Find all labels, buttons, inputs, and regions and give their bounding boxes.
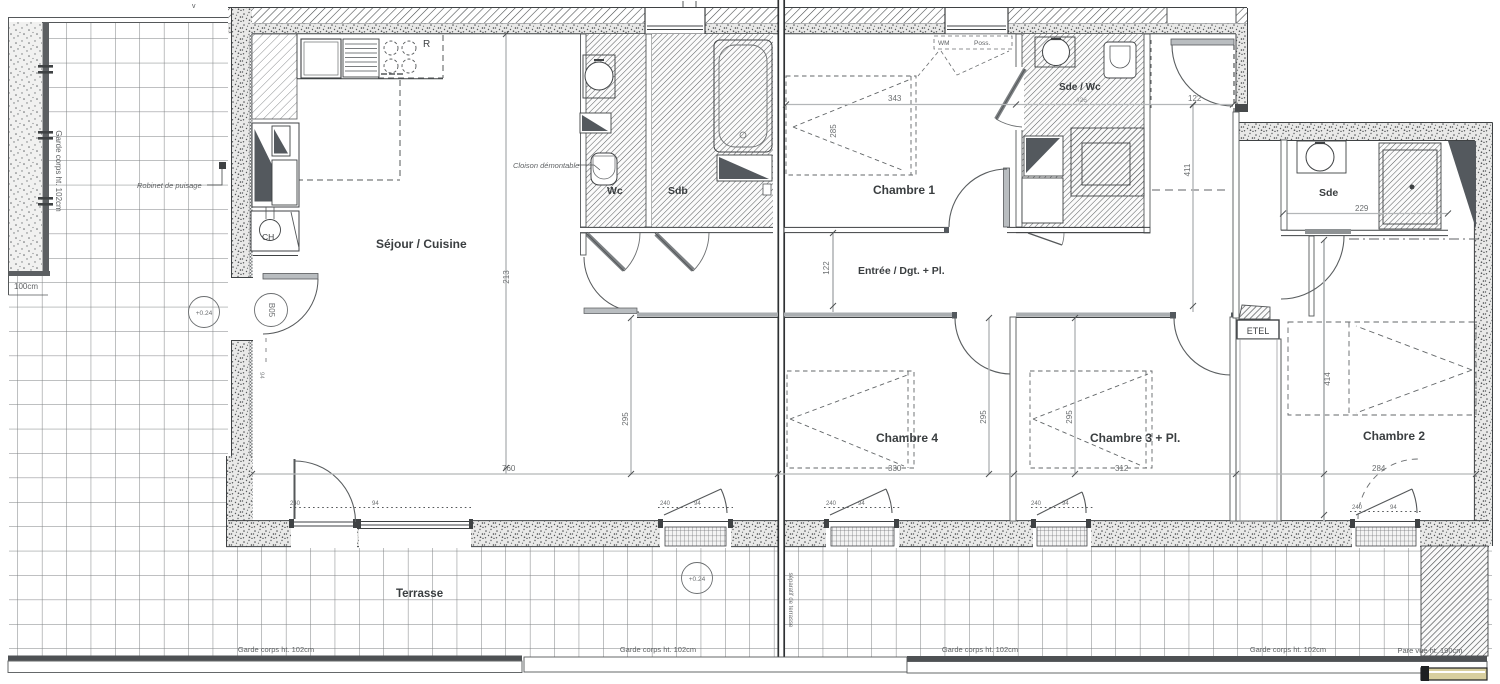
- svg-text:Chambre 2: Chambre 2: [1363, 429, 1425, 443]
- svg-text:B05: B05: [267, 303, 276, 318]
- svg-text:Garde corps ht. 102cm: Garde corps ht. 102cm: [942, 645, 1018, 654]
- svg-text:Robinet de puisage: Robinet de puisage: [137, 181, 202, 190]
- svg-text:240: 240: [826, 501, 837, 507]
- svg-text:295: 295: [979, 410, 988, 424]
- svg-text:CH: CH: [262, 232, 274, 242]
- svg-text:240: 240: [1031, 501, 1042, 507]
- svg-text:94: 94: [858, 501, 865, 507]
- svg-text:WM: WM: [938, 40, 950, 47]
- svg-text:Chambre 3 + Pl.: Chambre 3 + Pl.: [1090, 431, 1180, 445]
- svg-text:285: 285: [829, 124, 838, 138]
- svg-text:Wc: Wc: [607, 185, 623, 197]
- svg-text:229: 229: [1355, 204, 1369, 213]
- svg-text:240: 240: [1352, 505, 1363, 511]
- svg-text:Garde corps ht. 102cm: Garde corps ht. 102cm: [620, 645, 696, 654]
- svg-text:Garde corps ht. 102cm: Garde corps ht. 102cm: [238, 645, 314, 654]
- svg-text:+0.24: +0.24: [689, 576, 706, 583]
- svg-text:122: 122: [822, 261, 831, 275]
- svg-text:Séjour / Cuisine: Séjour / Cuisine: [376, 237, 467, 251]
- svg-text:240: 240: [660, 501, 671, 507]
- svg-text:94: 94: [1390, 505, 1397, 511]
- svg-text:#26: #26: [1076, 97, 1087, 104]
- svg-text:240: 240: [290, 501, 301, 507]
- svg-text:Cloison démontable: Cloison démontable: [513, 161, 579, 170]
- svg-text:séparatif de terrasse: séparatif de terrasse: [787, 573, 793, 628]
- svg-text:Sdb: Sdb: [668, 185, 688, 197]
- svg-text:94: 94: [372, 501, 379, 507]
- svg-text:213: 213: [502, 270, 511, 284]
- svg-text:Chambre 4: Chambre 4: [876, 431, 938, 445]
- svg-text:330: 330: [888, 464, 902, 473]
- svg-text:100cm: 100cm: [14, 282, 38, 291]
- svg-text:312: 312: [1115, 464, 1129, 473]
- svg-text:343: 343: [888, 94, 902, 103]
- svg-text:284: 284: [1372, 464, 1386, 473]
- svg-text:Poss.: Poss.: [974, 40, 990, 47]
- svg-text:Sde / Wc: Sde / Wc: [1059, 82, 1101, 93]
- svg-text:Chambre 1: Chambre 1: [873, 183, 935, 197]
- svg-text:ETEL: ETEL: [1247, 326, 1270, 336]
- svg-text:414: 414: [1323, 372, 1332, 386]
- svg-text:295: 295: [621, 412, 630, 426]
- svg-text:Garde corps ht. 102cm: Garde corps ht. 102cm: [54, 130, 63, 212]
- svg-text:Entrée / Dgt. + Pl.: Entrée / Dgt. + Pl.: [858, 265, 945, 277]
- svg-text:v: v: [192, 3, 196, 10]
- svg-text:94: 94: [1062, 501, 1069, 507]
- svg-text:295: 295: [1065, 410, 1074, 424]
- svg-text:94: 94: [694, 501, 701, 507]
- svg-text:R: R: [423, 39, 430, 50]
- svg-text:94: 94: [258, 372, 264, 379]
- svg-text:Terrasse: Terrasse: [396, 588, 443, 600]
- svg-text:411: 411: [1183, 163, 1192, 176]
- svg-text:122: 122: [1188, 94, 1202, 103]
- svg-text:Garde corps ht. 102cm: Garde corps ht. 102cm: [1250, 645, 1326, 654]
- svg-text:Pare vue ht. 190cm: Pare vue ht. 190cm: [1397, 646, 1462, 655]
- svg-text:+0.24: +0.24: [196, 310, 213, 317]
- svg-text:Sde: Sde: [1319, 187, 1338, 199]
